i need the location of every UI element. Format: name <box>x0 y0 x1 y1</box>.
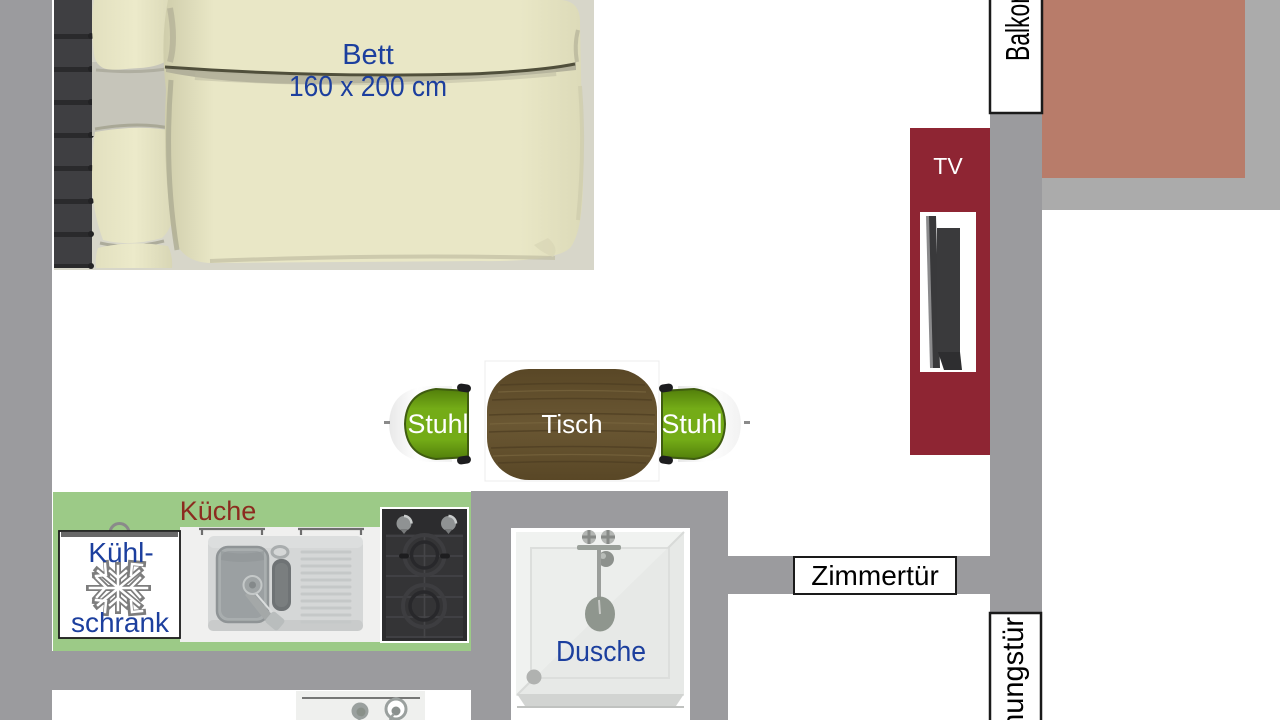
svg-text:Tisch: Tisch <box>541 409 602 439</box>
svg-text:Zimmertür: Zimmertür <box>811 560 939 591</box>
svg-text:Stuhl: Stuhl <box>662 409 723 439</box>
svg-text:Bett: Bett <box>342 39 394 71</box>
svg-text:Balkon: Balkon <box>999 0 1036 61</box>
svg-text:160 x 200 cm: 160 x 200 cm <box>289 71 447 103</box>
svg-text:Küche: Küche <box>180 496 257 526</box>
svg-text:schrank: schrank <box>71 607 170 638</box>
svg-text:Stuhl: Stuhl <box>408 409 469 439</box>
svg-text:Dusche: Dusche <box>556 636 646 668</box>
svg-text:TV: TV <box>933 153 963 179</box>
svg-text:Kühl-: Kühl- <box>88 537 153 568</box>
svg-text:Wohnungstür: Wohnungstür <box>997 617 1030 720</box>
